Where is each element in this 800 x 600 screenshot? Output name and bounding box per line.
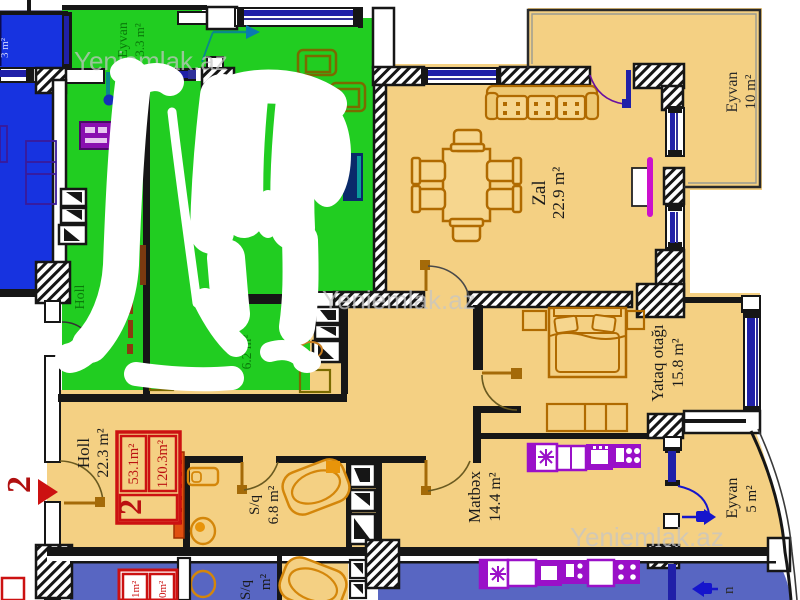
svg-text:Yataq otağı: Yataq otağı [648,324,667,401]
svg-text:22.3 m²: 22.3 m² [95,428,112,477]
svg-text:15.8 m²: 15.8 m² [670,338,687,387]
svg-text:Yeniemlak.az: Yeniemlak.az [570,522,724,552]
svg-text:Holl: Holl [74,438,93,469]
svg-text:Eyvan: Eyvan [724,478,741,519]
svg-text:S/q: S/q [238,579,254,600]
svg-text:Matbəx: Matbəx [465,471,484,523]
svg-text:m²: m² [258,573,274,590]
svg-text:S/q: S/q [247,494,263,515]
svg-text:14.4 m²: 14.4 m² [487,472,504,521]
svg-text:53.1m²: 53.1m² [126,443,142,485]
svg-text:2: 2 [1,476,38,493]
svg-text:10 m²: 10 m² [743,74,759,109]
svg-text:120.3m²: 120.3m² [155,439,171,488]
svg-text:3 m²: 3 m² [0,37,11,58]
svg-text:22.9 m²: 22.9 m² [549,167,568,219]
svg-text:2: 2 [112,499,148,515]
svg-text:Holl: Holl [73,284,88,309]
svg-text:1m²: 1m² [130,580,142,598]
svg-text:5 m²: 5 m² [744,485,760,513]
svg-text:6.8 m²: 6.8 m² [266,485,282,524]
svg-text:0m²: 0m² [157,580,169,598]
svg-text:Eyvan: Eyvan [724,72,741,113]
svg-text:n: n [721,586,737,594]
svg-text:Zal: Zal [529,180,550,205]
svg-text:Yeniemlak.az: Yeniemlak.az [322,285,476,315]
